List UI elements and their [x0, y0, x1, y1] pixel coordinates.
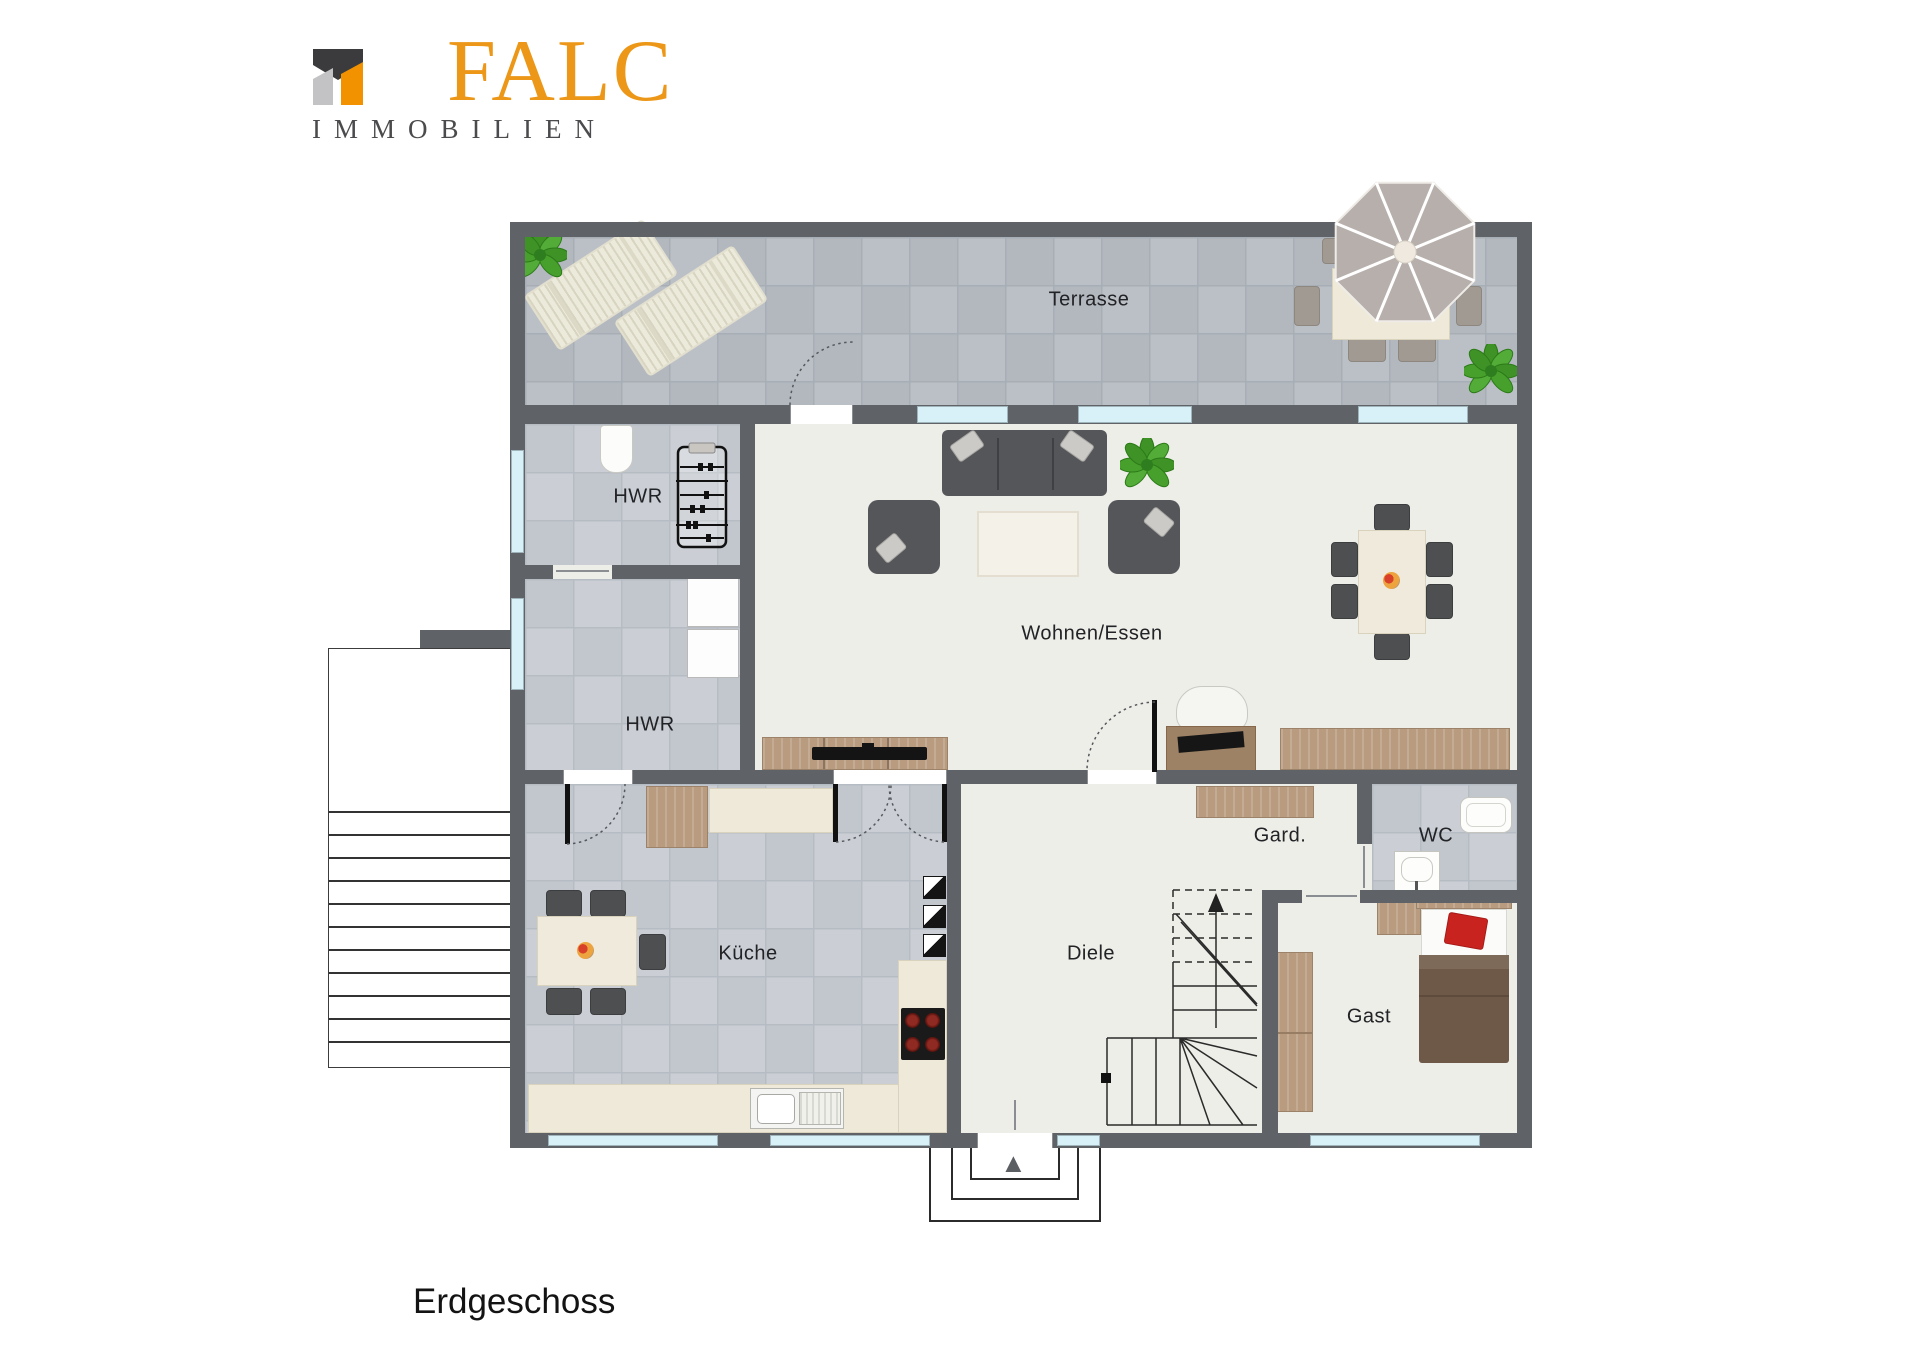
- burner: [905, 1037, 920, 1052]
- room-label-wohnen-essen: Wohnen/Essen: [1021, 623, 1162, 646]
- washing-machine: [687, 578, 739, 627]
- window: [1057, 1135, 1100, 1146]
- window: [917, 406, 1008, 423]
- dining-chair: [1374, 633, 1410, 660]
- parasol-icon: [1330, 177, 1480, 327]
- door-leaf: [833, 784, 838, 842]
- entrance-door: [977, 1133, 1053, 1148]
- room-label-hwr-top: HWR: [613, 486, 662, 509]
- bed-pillow: [1444, 912, 1489, 950]
- kitchen-chair: [546, 988, 582, 1015]
- wall: [525, 770, 563, 784]
- wall: [947, 784, 961, 1133]
- wc-door-line: [1363, 846, 1365, 888]
- terrace-door: [790, 405, 853, 424]
- window: [1310, 1135, 1480, 1146]
- window: [511, 598, 524, 690]
- burner: [925, 1037, 940, 1052]
- wall: [1262, 890, 1278, 1133]
- window: [548, 1135, 718, 1146]
- room-label-wc: WC: [1419, 825, 1453, 848]
- room-label-gast: Gast: [1347, 1006, 1391, 1029]
- bed-blanket: [1419, 955, 1509, 1063]
- wardrobe-bench: [1196, 786, 1314, 818]
- tall-appliance-icon: [923, 905, 946, 928]
- armchair: [868, 500, 940, 574]
- wall: [1360, 890, 1517, 903]
- sink-basin: [757, 1094, 795, 1124]
- window: [511, 450, 524, 553]
- wall: [740, 424, 755, 784]
- terrace-chair: [1294, 286, 1320, 326]
- tall-appliance-icon: [923, 934, 946, 957]
- burner: [905, 1013, 920, 1028]
- dining-chair: [1426, 542, 1453, 577]
- wall: [525, 565, 553, 579]
- room-label-diele: Diele: [1067, 943, 1115, 966]
- door-leaf: [565, 784, 570, 844]
- utility-sink: [600, 425, 633, 473]
- wall: [612, 565, 740, 579]
- burner: [925, 1013, 940, 1028]
- wall: [1517, 222, 1532, 1148]
- room-label-terrasse: Terrasse: [1049, 289, 1130, 312]
- room-label-kueche: Küche: [718, 943, 777, 966]
- fruit-bowl: [577, 942, 594, 959]
- wall: [947, 770, 1087, 784]
- exterior-stair-wall-stub: [420, 630, 512, 648]
- dining-chair: [1331, 584, 1358, 619]
- hwr-kitchen-door: [563, 770, 633, 784]
- tv-stand: [862, 743, 874, 748]
- rug: [977, 511, 1079, 577]
- gast-wardrobe: [1277, 952, 1313, 1112]
- brand-name: FALC: [447, 28, 673, 116]
- brand-subtitle: IMMOBILIEN: [312, 114, 607, 145]
- sideboard: [1280, 728, 1510, 770]
- fruit-bowl: [1383, 572, 1400, 589]
- gast-door-line: [1306, 895, 1357, 897]
- dining-chair: [1374, 504, 1410, 531]
- sink-drainer: [799, 1092, 841, 1125]
- window: [770, 1135, 930, 1146]
- entrance-arrow-icon: ▲: [1000, 1148, 1027, 1179]
- toilet: [1460, 797, 1512, 833]
- tv: [812, 747, 927, 760]
- washbasin: [1394, 851, 1440, 891]
- wall: [633, 770, 833, 784]
- kitchen-chair: [639, 934, 666, 970]
- living-kitchen-double-door: [833, 770, 947, 784]
- door-leaf: [1152, 700, 1157, 772]
- living-diele-door: [1087, 770, 1157, 784]
- room-label-garderobe: Gard.: [1254, 825, 1307, 848]
- brand-logo-icon: [311, 49, 365, 107]
- kitchen-chair: [590, 890, 626, 917]
- dryer: [687, 629, 739, 678]
- dining-chair: [1331, 542, 1358, 577]
- door-leaf: [942, 784, 947, 842]
- boiler-icon: [676, 441, 728, 551]
- wall: [1157, 770, 1517, 784]
- entrance-door-tick: [1014, 1100, 1016, 1130]
- kitchen-chair: [546, 890, 582, 917]
- dining-chair: [1426, 584, 1453, 619]
- exterior-staircase: [328, 648, 512, 1068]
- kitchen-counter-top: [709, 788, 833, 833]
- window: [1078, 406, 1192, 423]
- armchair: [1108, 500, 1180, 574]
- kitchen-chair: [590, 988, 626, 1015]
- plant-icon: [1120, 438, 1174, 492]
- plant-icon: [1464, 344, 1518, 398]
- sliding-door-line: [556, 570, 609, 572]
- room-label-hwr-bottom: HWR: [625, 714, 674, 737]
- window: [1358, 406, 1468, 423]
- floor-title: Erdgeschoss: [413, 1282, 615, 1322]
- kitchen-counter-bottom: [528, 1084, 906, 1133]
- tall-appliance-icon: [923, 876, 946, 899]
- wall: [1357, 784, 1372, 844]
- kitchen-cabinet: [646, 786, 708, 848]
